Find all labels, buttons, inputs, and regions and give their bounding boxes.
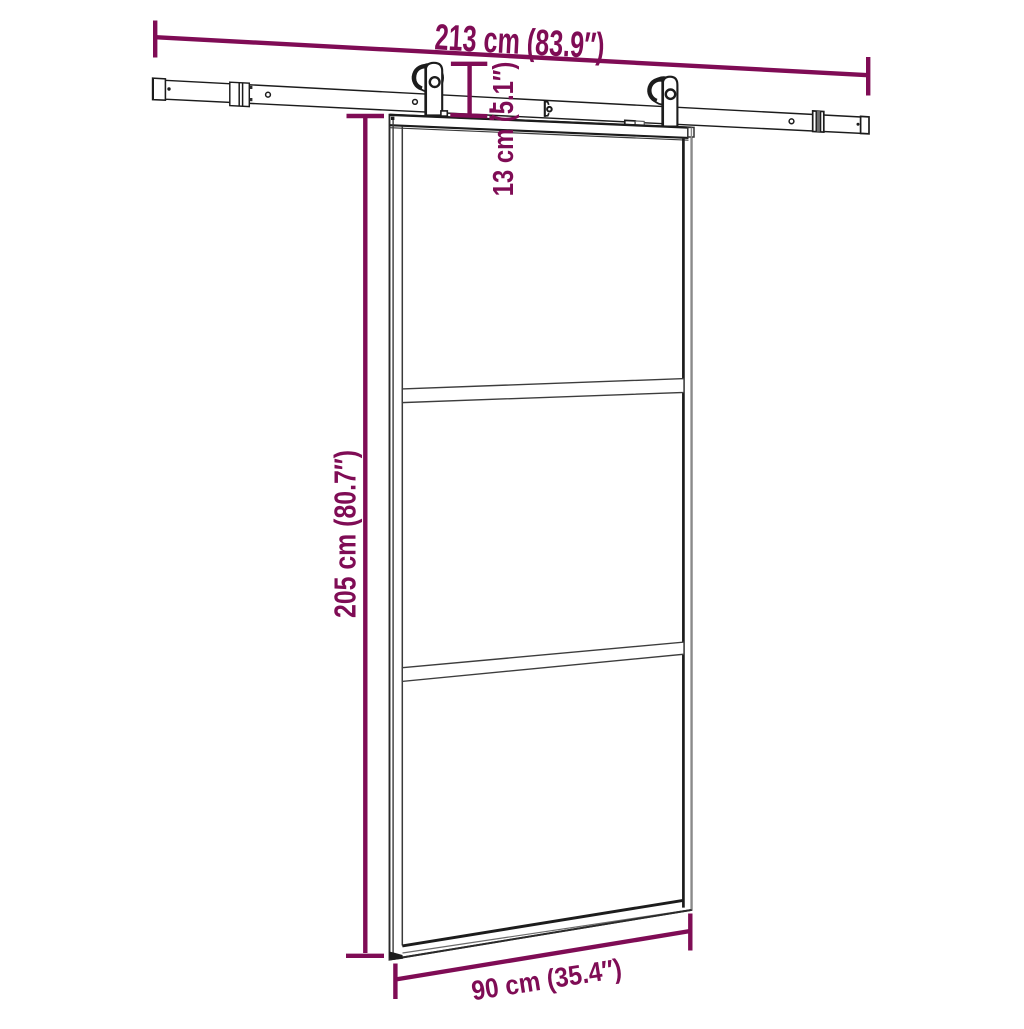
svg-text:13 cm (5.1″): 13 cm (5.1″): [488, 62, 520, 197]
svg-text:205 cm (80.7″): 205 cm (80.7″): [328, 450, 363, 618]
